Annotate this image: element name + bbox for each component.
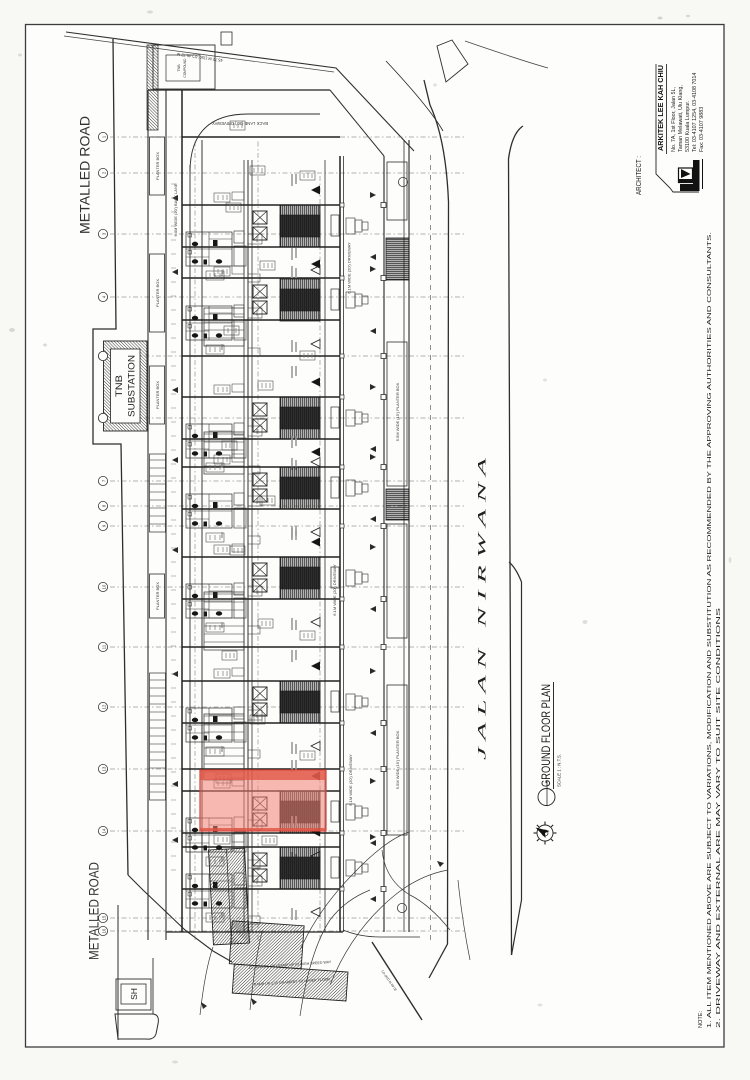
svg-text:6.0M WIDE (20') BACK LANE: 6.0M WIDE (20') BACK LANE <box>173 183 178 236</box>
svg-text:Tel: 03-4107 1254, 03-4108 701: Tel: 03-4107 1254, 03-4108 7014 <box>692 73 698 152</box>
svg-text:NOTE:: NOTE: <box>698 1010 704 1028</box>
svg-text:6.1M WIDE (20') DRIVEWAY: 6.1M WIDE (20') DRIVEWAY <box>332 564 337 616</box>
svg-text:No. 7A, 1st Floor, Jalan 5L,: No. 7A, 1st Floor, Jalan 5L, <box>671 86 677 152</box>
svg-text:PLANTER BOX: PLANTER BOX <box>155 152 160 180</box>
svg-text:SCALE 1 : N.T.S.: SCALE 1 : N.T.S. <box>557 754 562 787</box>
svg-text:SH: SH <box>129 988 139 1000</box>
svg-text:METALLED ROAD: METALLED ROAD <box>87 862 102 960</box>
svg-text:53100 Kuala Lumpur.: 53100 Kuala Lumpur. <box>685 101 691 152</box>
svg-text:14: 14 <box>101 828 106 833</box>
svg-text:Fax: 03-4107 9883: Fax: 03-4107 9883 <box>699 107 705 152</box>
svg-text:SUBSTATION: SUBSTATION <box>127 355 137 417</box>
svg-text:2. DRIVEWAY AND EXTERNAL ARE M: 2. DRIVEWAY AND EXTERNAL ARE MAY VARY TO… <box>716 607 722 1028</box>
svg-text:METALLED ROAD: METALLED ROAD <box>78 116 93 234</box>
svg-text:Taman Melawati, Ulu Klang,: Taman Melawati, Ulu Klang, <box>678 85 684 152</box>
svg-text:16: 16 <box>101 928 106 933</box>
svg-text:ARKITEK LEE KAH CHIU: ARKITEK LEE KAH CHIU <box>656 65 665 151</box>
svg-text:J A L A N N I R W A N A: J A L A N N I R W A N A <box>477 456 489 760</box>
svg-text:TNB: TNB <box>177 64 181 72</box>
svg-text:ARCHITECT :: ARCHITECT : <box>634 156 643 195</box>
svg-text:PLANTER BOX: PLANTER BOX <box>155 279 160 307</box>
svg-text:PLANTER BOX: PLANTER BOX <box>155 582 160 610</box>
svg-text:TNB: TNB <box>114 375 124 397</box>
svg-text:PLANTER BOX: PLANTER BOX <box>155 381 160 409</box>
svg-text:12: 12 <box>101 704 106 709</box>
svg-text:10: 10 <box>101 584 106 589</box>
svg-text:5.5M WIDE (15') PLANTER BOX: 5.5M WIDE (15') PLANTER BOX <box>395 730 400 789</box>
svg-text:GROUND FLOOR PLAN: GROUND FLOOR PLAN <box>539 684 553 787</box>
svg-text:15: 15 <box>101 915 106 920</box>
svg-text:5.5M WIDE (15') PLANTER BOX: 5.5M WIDE (15') PLANTER BOX <box>395 382 400 441</box>
svg-text:COMPOUND: COMPOUND <box>183 58 187 78</box>
svg-text:6.1M WIDE (20') DRIVEWAY: 6.1M WIDE (20') DRIVEWAY <box>348 754 353 806</box>
svg-text:BACK LANE (20') DRIVEWAY: BACK LANE (20') DRIVEWAY <box>212 121 268 126</box>
svg-text:6.1M WIDE (20') DRIVEWAY: 6.1M WIDE (20') DRIVEWAY <box>347 242 352 294</box>
svg-text:1. ALL ITEM MENTIONED ABOVE AR: 1. ALL ITEM MENTIONED ABOVE ARE SUBJECT … <box>707 231 713 1028</box>
svg-text:11: 11 <box>101 644 106 649</box>
svg-text:13: 13 <box>101 766 106 771</box>
